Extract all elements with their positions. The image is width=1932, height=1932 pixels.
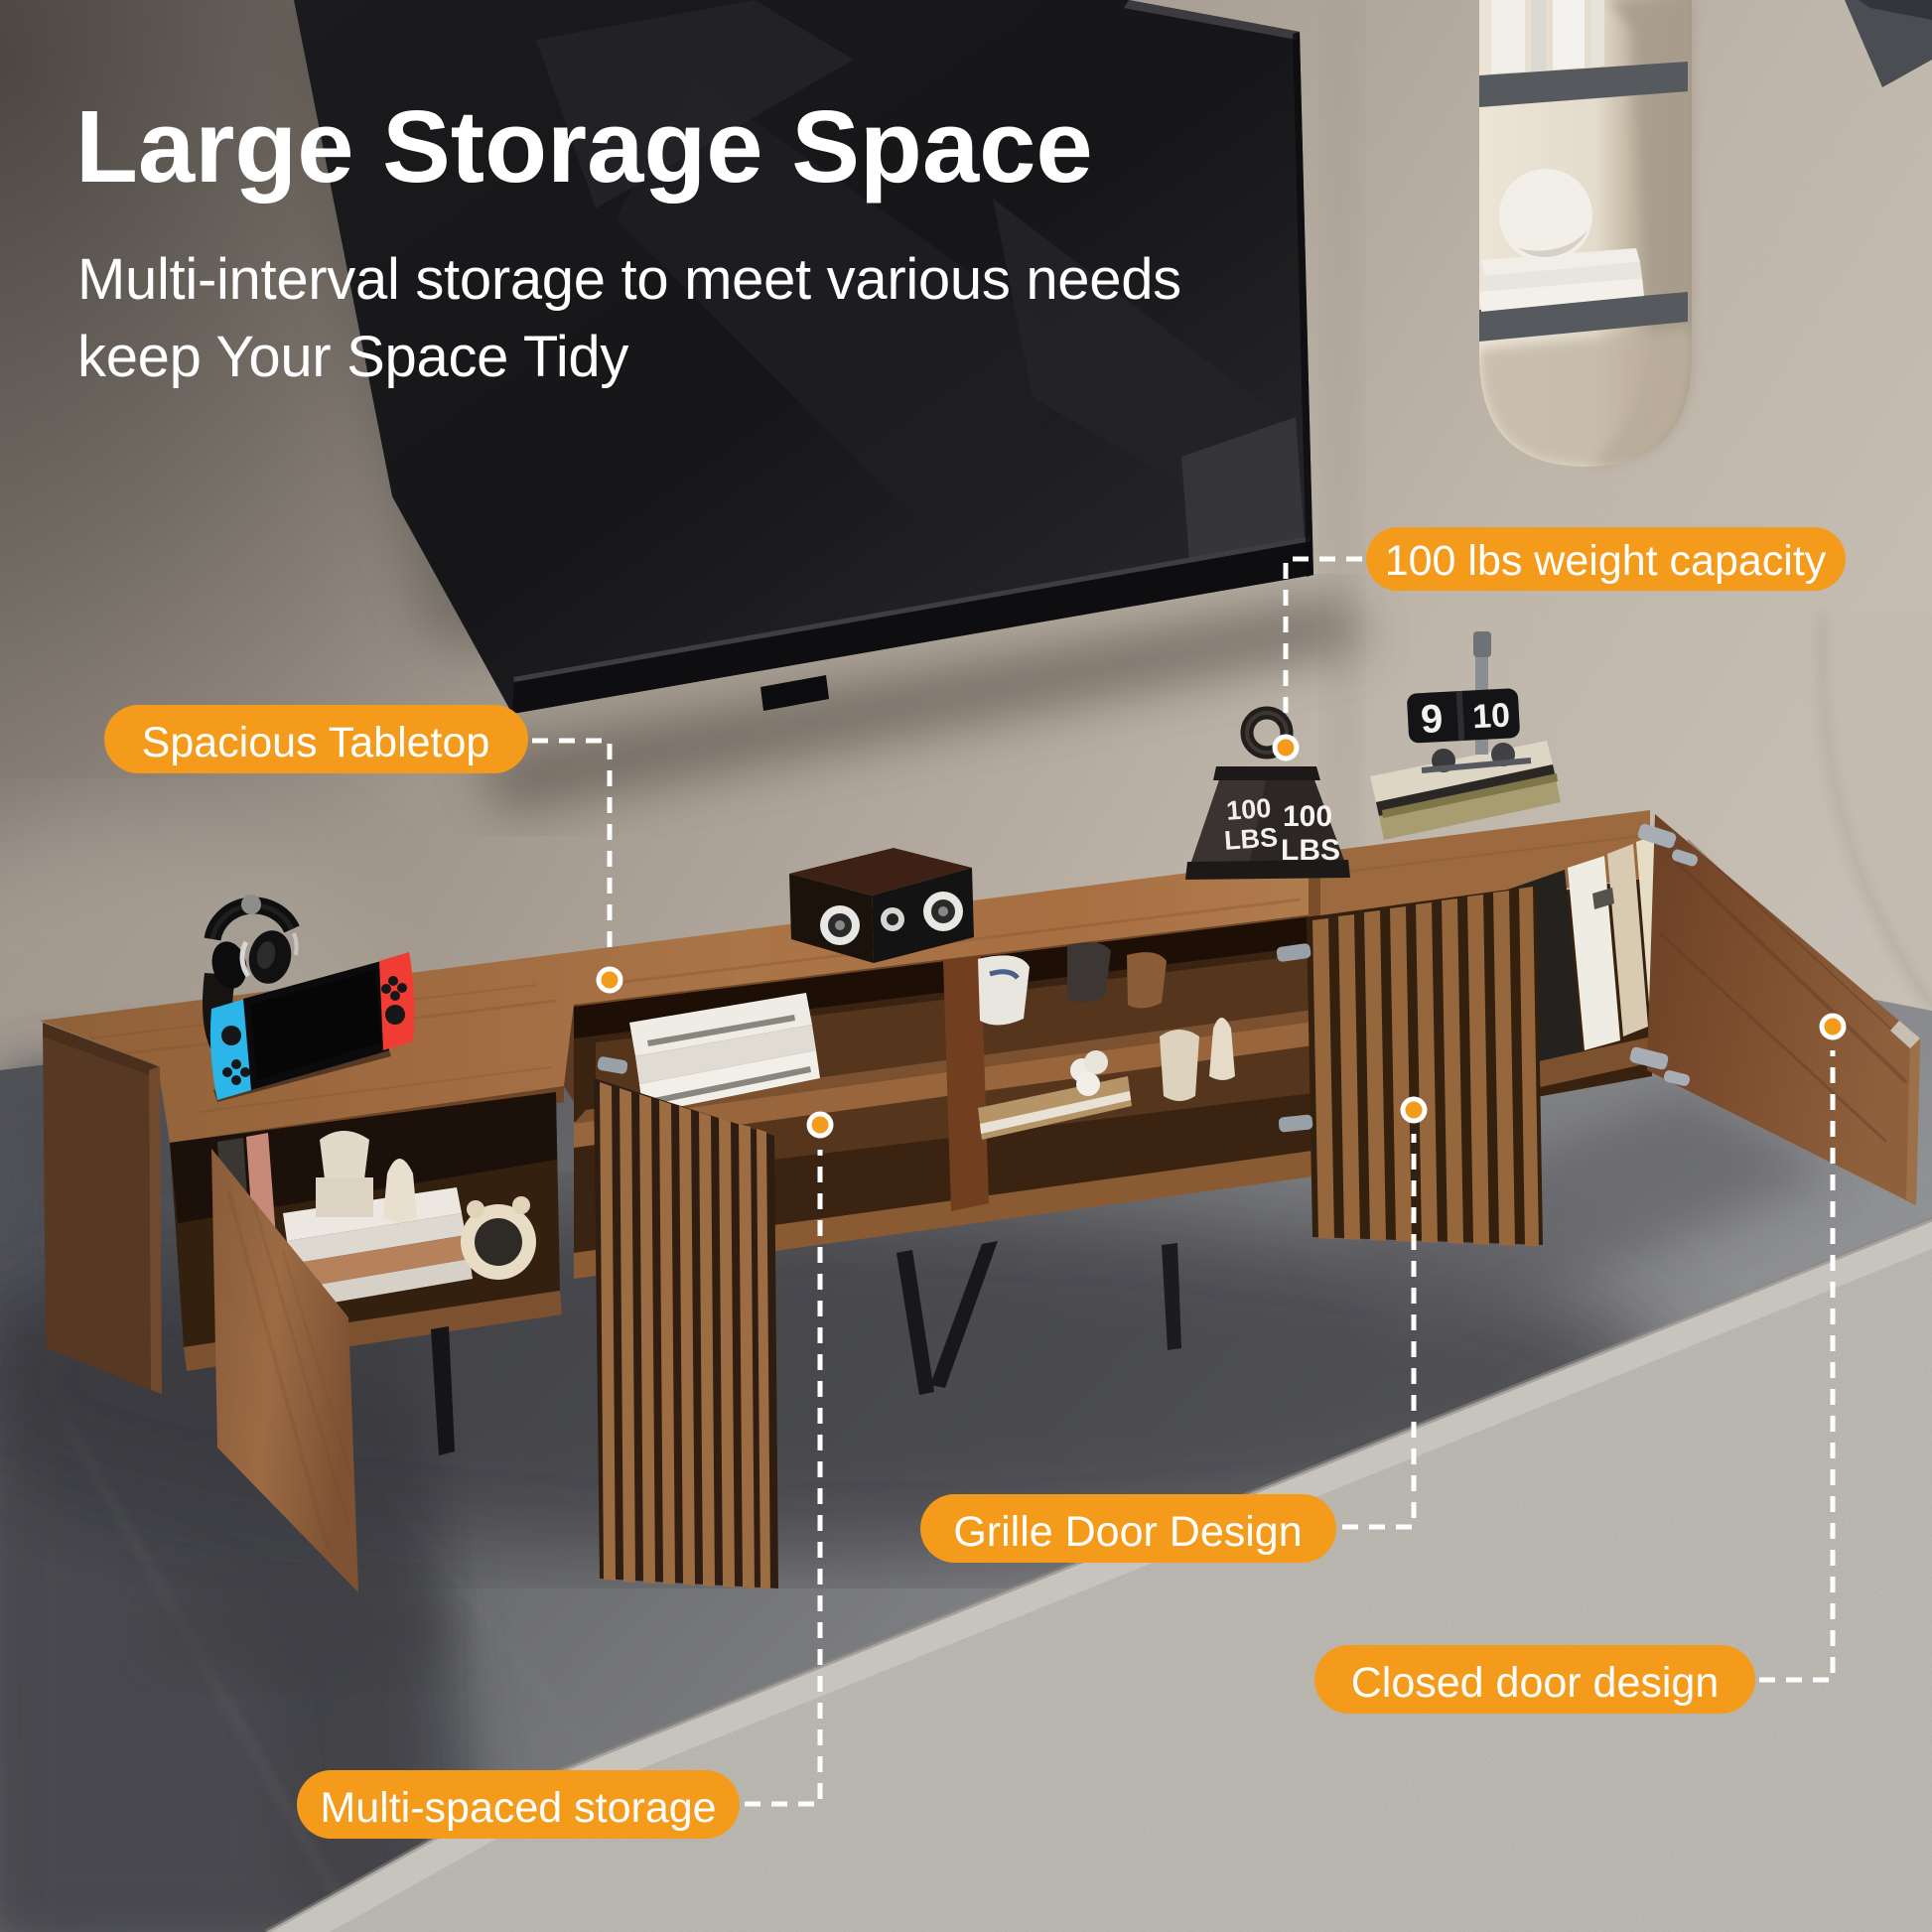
svg-text:LBS: LBS xyxy=(1223,822,1279,856)
svg-text:100: 100 xyxy=(1283,800,1332,833)
svg-text:100: 100 xyxy=(1225,793,1272,826)
svg-text:Large Storage Space: Large Storage Space xyxy=(75,89,1093,204)
svg-text:Multi-interval storage to meet: Multi-interval storage to meet various n… xyxy=(77,247,1181,312)
svg-text:Grille Door Design: Grille Door Design xyxy=(953,1508,1302,1556)
svg-text:LBS: LBS xyxy=(1281,834,1340,867)
svg-text:9: 9 xyxy=(1420,697,1445,742)
svg-text:Spacious Tabletop: Spacious Tabletop xyxy=(142,719,490,766)
svg-text:keep Your Space Tidy: keep Your Space Tidy xyxy=(77,325,628,389)
svg-text:Closed door design: Closed door design xyxy=(1351,1659,1720,1707)
svg-text:Multi-spaced storage: Multi-spaced storage xyxy=(320,1784,716,1832)
svg-text:10: 10 xyxy=(1471,696,1511,736)
svg-text:100 lbs weight capacity: 100 lbs weight capacity xyxy=(1385,537,1827,585)
